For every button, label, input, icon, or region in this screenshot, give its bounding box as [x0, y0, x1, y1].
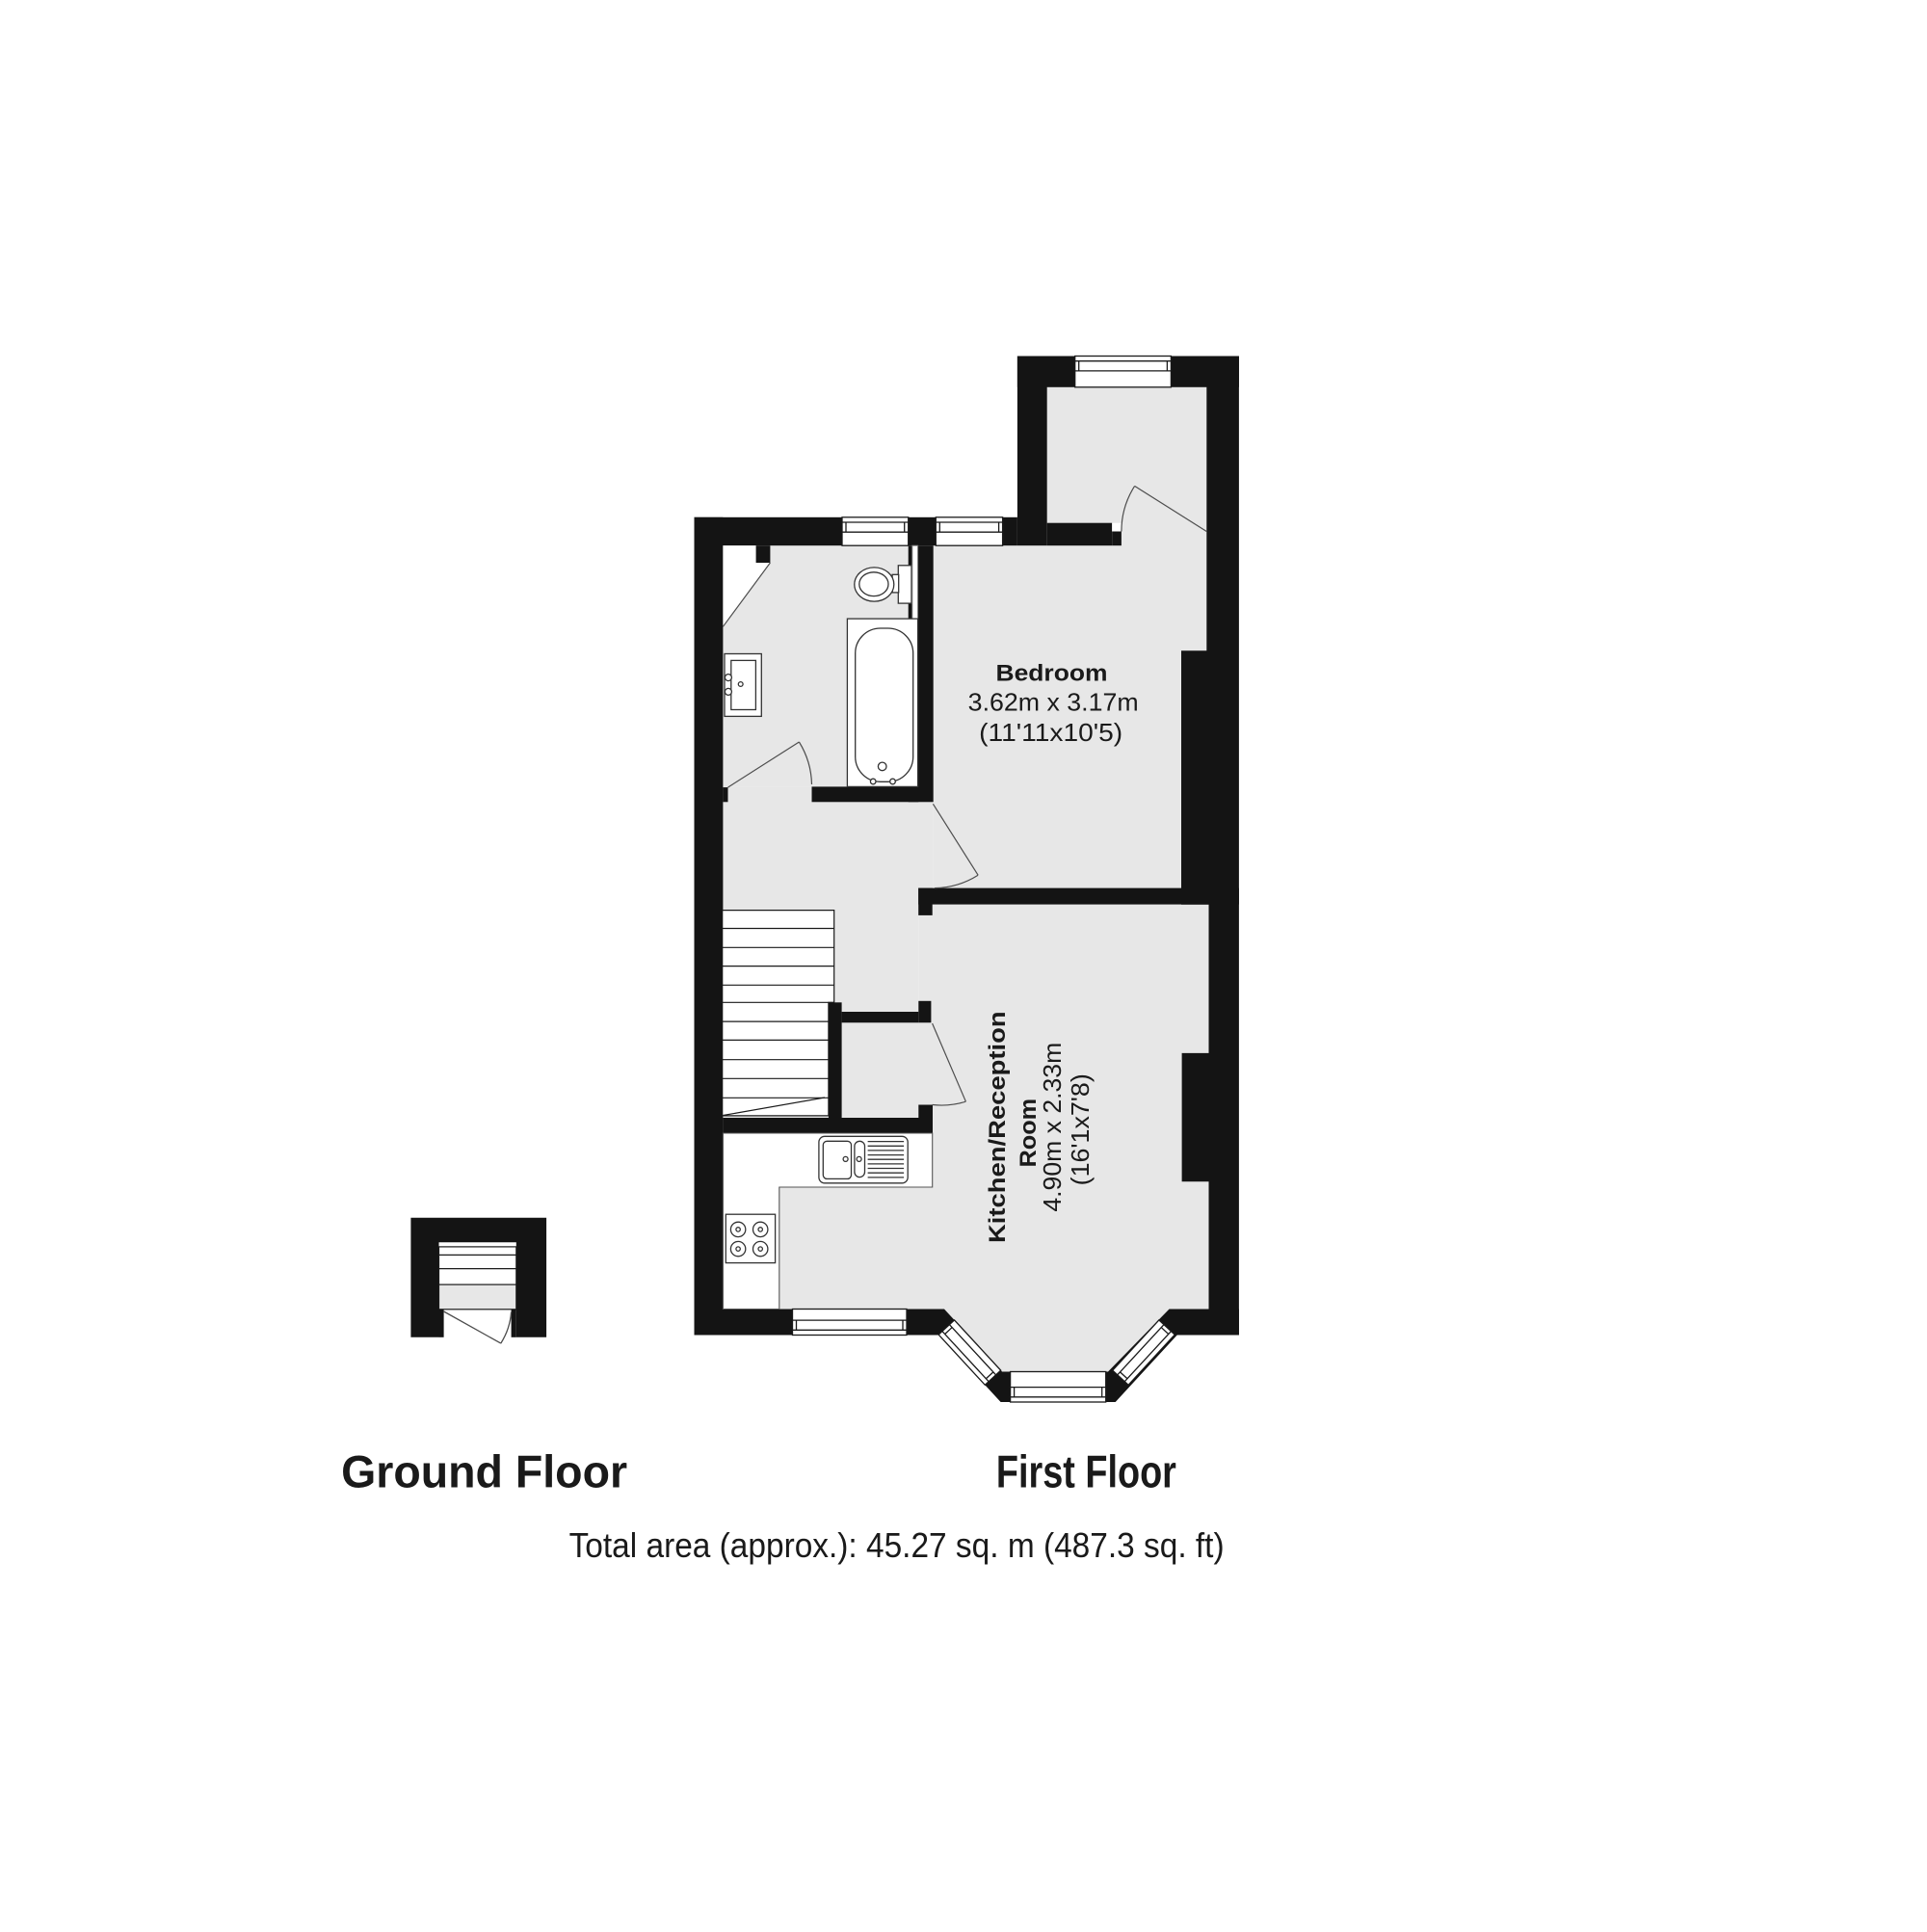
svg-text:4.90m x 2.33m: 4.90m x 2.33m: [1038, 1043, 1067, 1212]
svg-text:(16'1x7'8): (16'1x7'8): [1066, 1073, 1095, 1185]
svg-text:(11'11x10'5): (11'11x10'5): [979, 718, 1122, 747]
svg-text:Bedroom: Bedroom: [996, 661, 1108, 687]
svg-text:3.62m x 3.17m: 3.62m x 3.17m: [968, 688, 1139, 717]
svg-text:Kitchen/Reception: Kitchen/Reception: [985, 1011, 1011, 1243]
svg-text:Ground Floor: Ground Floor: [341, 1446, 627, 1497]
svg-text:Total area (approx.): 45.27 sq: Total area (approx.): 45.27 sq. m (487.3…: [569, 1525, 1225, 1565]
svg-text:First Floor: First Floor: [996, 1446, 1176, 1497]
